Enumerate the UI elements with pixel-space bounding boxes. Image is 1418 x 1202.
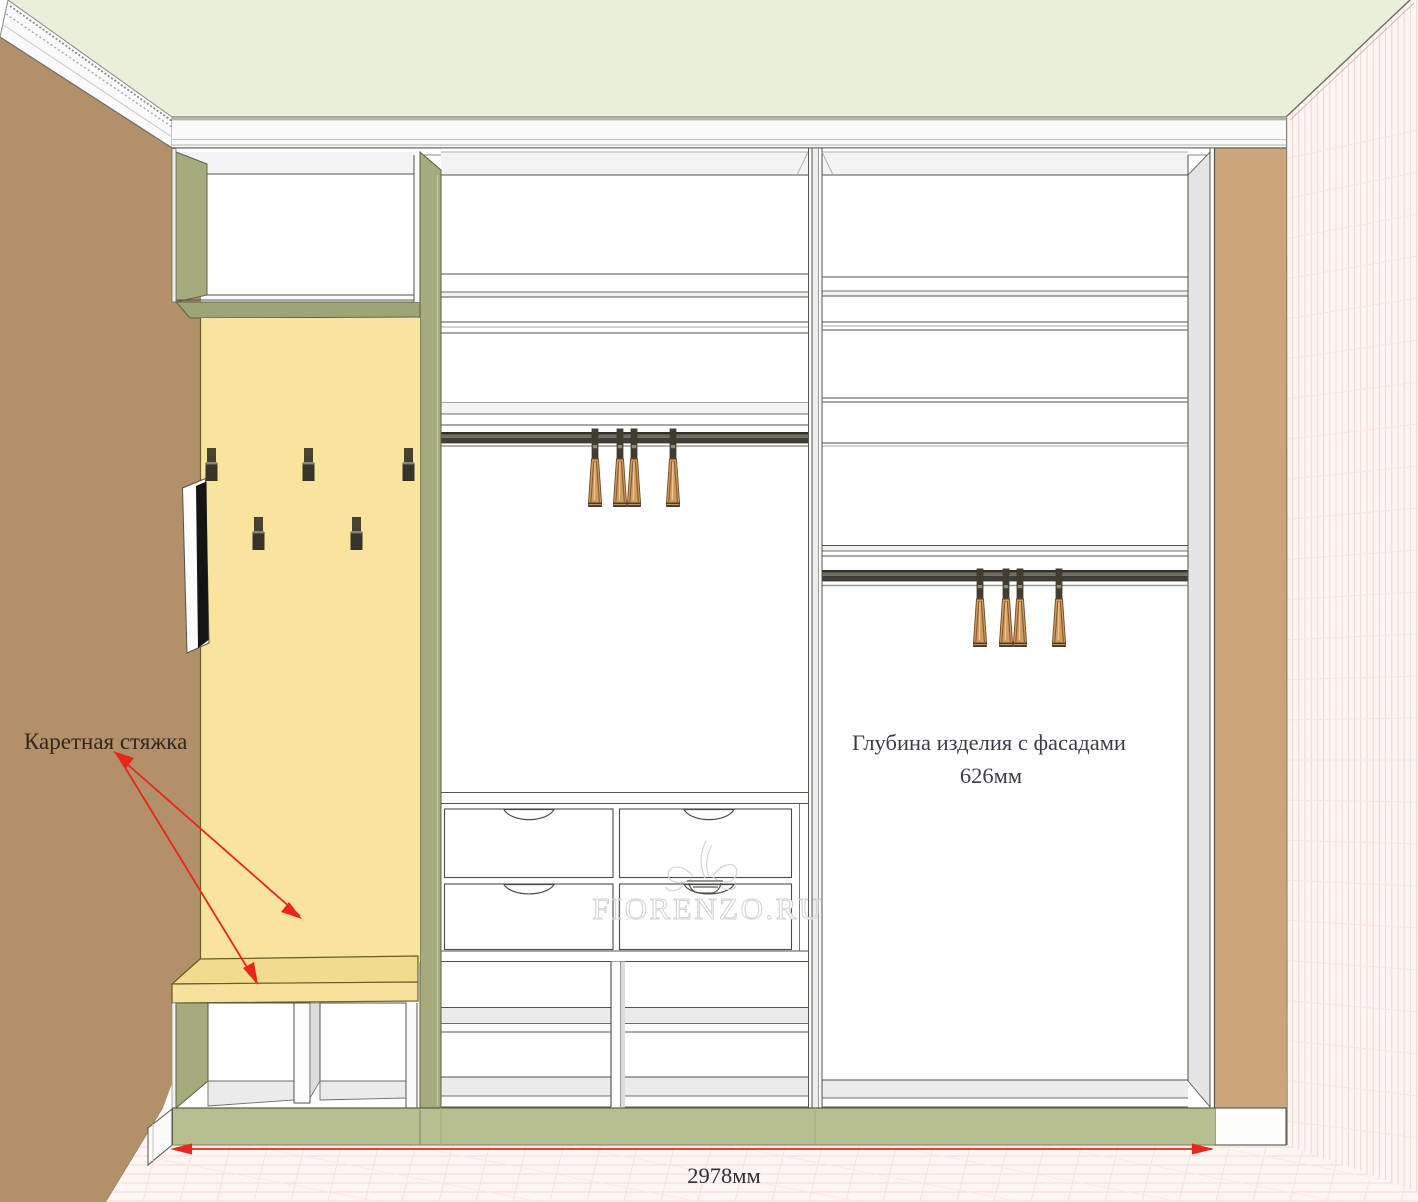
svg-text:FIORENZO.RU: FIORENZO.RU bbox=[592, 891, 824, 926]
svg-text:Каретная стяжка: Каретная стяжка bbox=[24, 729, 187, 754]
svg-text:Глубина изделия с фасадами: Глубина изделия с фасадами bbox=[852, 730, 1126, 755]
svg-text:2978мм: 2978мм bbox=[687, 1163, 760, 1188]
svg-text:626мм: 626мм bbox=[960, 763, 1022, 788]
